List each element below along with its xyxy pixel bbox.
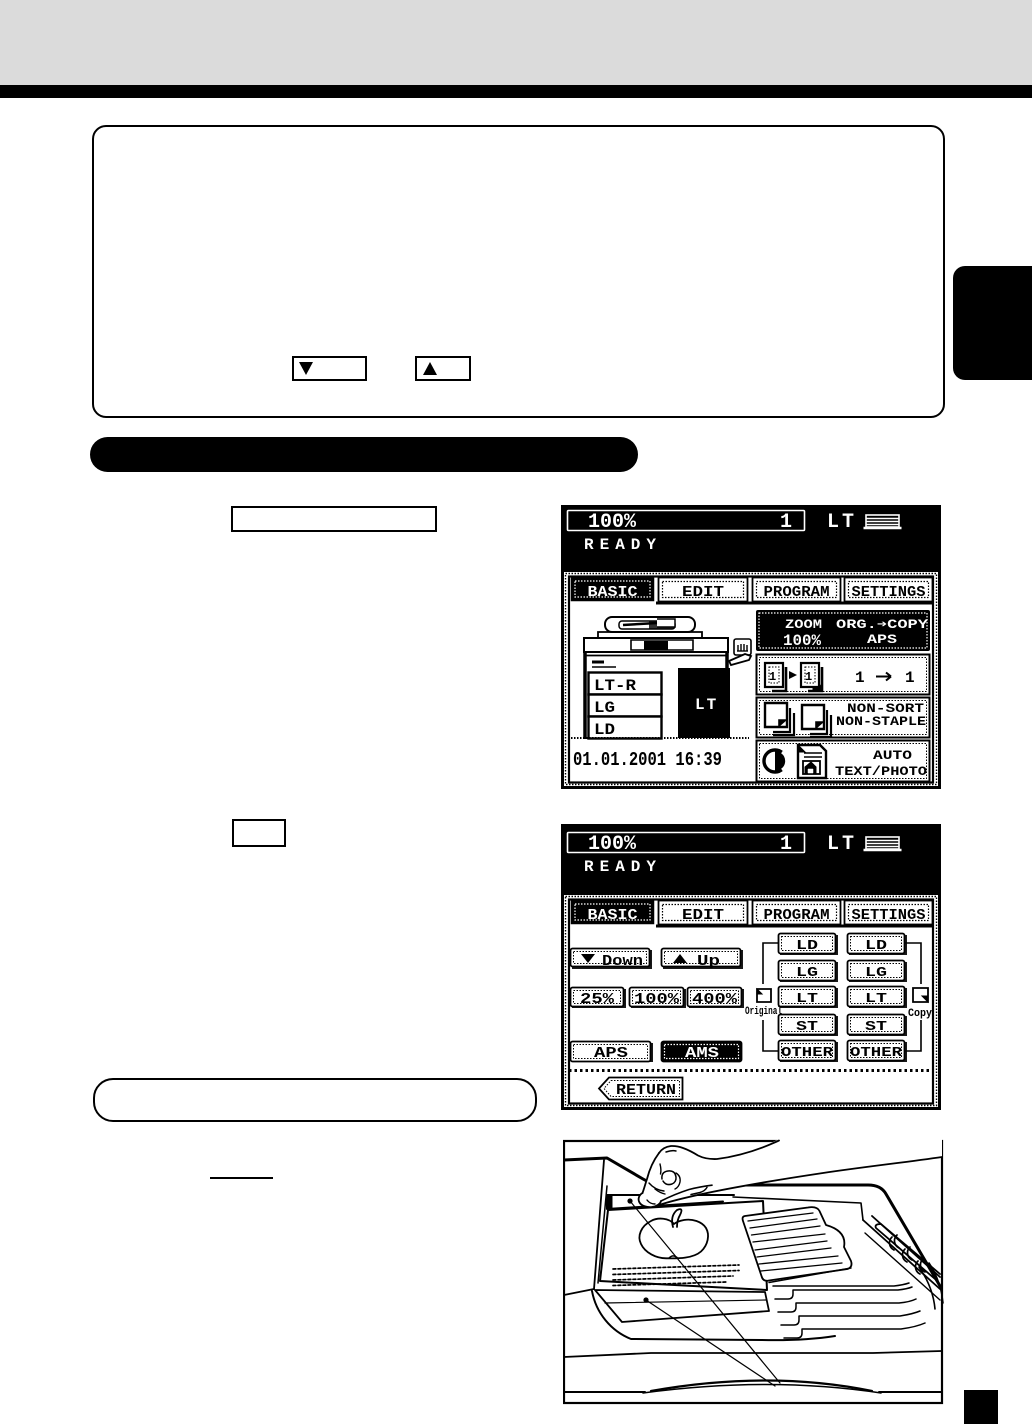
svg-text:AMS: AMS <box>685 1045 719 1062</box>
svg-text:LT: LT <box>827 511 857 534</box>
svg-text:Original: Original <box>745 1006 782 1018</box>
svg-text:SETTINGS: SETTINGS <box>852 584 926 601</box>
svg-text:25%: 25% <box>580 991 615 1008</box>
svg-text:LG: LG <box>865 965 887 981</box>
svg-text:LT: LT <box>827 833 857 856</box>
svg-text:01.01.2001 16:39: 01.01.2001 16:39 <box>573 749 722 771</box>
svg-text:PROGRAM: PROGRAM <box>764 584 830 601</box>
svg-text:ST: ST <box>865 1019 887 1035</box>
svg-text:TEXT/PHOTO: TEXT/PHOTO <box>835 764 927 779</box>
svg-text:READY: READY <box>584 858 662 876</box>
svg-text:NON-STAPLE: NON-STAPLE <box>836 714 926 729</box>
svg-text:LG: LG <box>594 699 615 717</box>
svg-text:SETTINGS: SETTINGS <box>852 907 926 924</box>
svg-text:LD: LD <box>796 938 818 954</box>
svg-text:LD: LD <box>594 721 615 739</box>
svg-text:1: 1 <box>805 670 812 684</box>
svg-text:PROGRAM: PROGRAM <box>764 907 830 924</box>
svg-text:400%: 400% <box>692 991 738 1008</box>
svg-text:OTHER: OTHER <box>850 1045 903 1061</box>
svg-text:LT-R: LT-R <box>594 677 636 695</box>
svg-text:ZOOM: ZOOM <box>785 617 822 632</box>
svg-text:AUTO: AUTO <box>873 748 912 763</box>
svg-text:1: 1 <box>780 833 792 856</box>
svg-text:READY: READY <box>584 536 662 554</box>
svg-text:1: 1 <box>769 670 776 684</box>
svg-text:ORG.➔COPY: ORG.➔COPY <box>836 617 928 632</box>
svg-text:100%: 100% <box>634 991 680 1008</box>
svg-text:Copy: Copy <box>908 1008 932 1020</box>
svg-text:LG: LG <box>796 965 818 981</box>
svg-text:1: 1 <box>905 669 915 687</box>
svg-text:Down: Down <box>602 953 643 970</box>
svg-text:OTHER: OTHER <box>781 1045 834 1061</box>
svg-text:100%: 100% <box>588 833 637 856</box>
svg-text:100%: 100% <box>783 632 821 650</box>
svg-text:100%: 100% <box>588 511 637 534</box>
svg-text:RETURN: RETURN <box>616 1082 676 1099</box>
svg-text:LT: LT <box>695 696 718 714</box>
svg-text:1: 1 <box>780 511 792 534</box>
svg-text:BASIC: BASIC <box>588 907 638 924</box>
svg-text:APS: APS <box>867 632 897 647</box>
svg-text:Up: Up <box>697 953 720 970</box>
svg-text:1: 1 <box>855 669 865 687</box>
svg-text:EDIT: EDIT <box>682 584 724 601</box>
svg-text:BASIC: BASIC <box>588 584 638 601</box>
svg-text:EDIT: EDIT <box>682 907 724 924</box>
svg-text:LT: LT <box>796 991 818 1007</box>
svg-text:LD: LD <box>865 938 887 954</box>
svg-text:ST: ST <box>796 1019 818 1035</box>
svg-text:LT: LT <box>865 991 887 1007</box>
svg-text:APS: APS <box>594 1045 628 1062</box>
